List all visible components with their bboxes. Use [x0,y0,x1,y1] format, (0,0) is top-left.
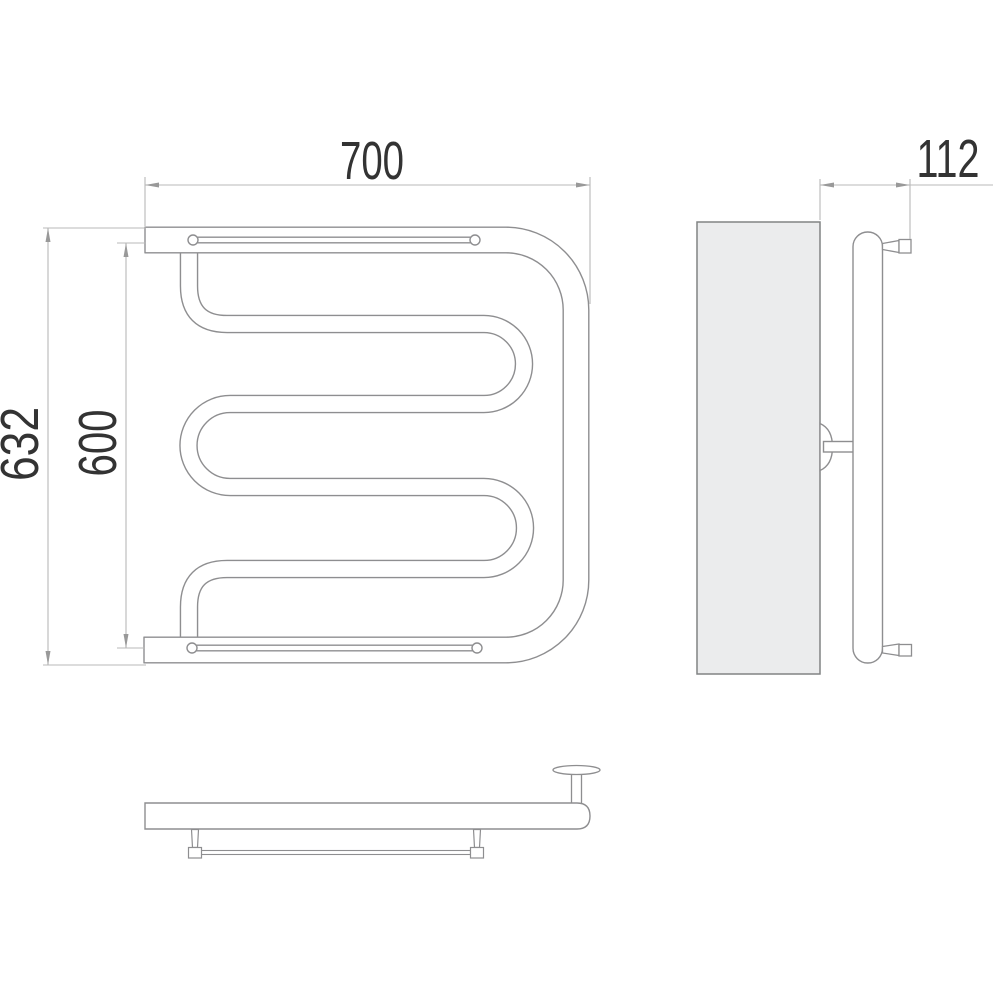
bottom-bar-right-pin [472,643,482,653]
bottom-connection-fitting [883,644,912,656]
arrowhead-top [124,243,129,257]
dimension-label-axis-height: 600 [68,410,128,477]
shelf-tube-plan [145,803,590,829]
top-view [145,766,600,859]
arrowhead-left [145,183,159,188]
arrowhead-bottom [124,634,129,648]
wall-panel [697,222,820,674]
dimension-label-depth: 112 [917,129,980,189]
arrowhead-right [576,183,590,188]
top-bar-right-pin [470,235,480,245]
towel-bar-plan [201,851,471,855]
shelf-rails-and-right-bend [144,227,576,664]
towel-bar-right-support [471,830,484,859]
top-bar-left-pin [188,235,198,245]
top-connection-fitting [883,240,912,254]
arrowhead-left [820,183,834,188]
towel-bar-left-support [189,830,202,859]
bottom-bar-left-pin [187,643,197,653]
dimension-depth-112: 112 [820,129,993,239]
arrowhead-top [46,228,51,242]
front-view [144,227,576,664]
bracket-wall-plate [553,766,600,775]
side-pipe [853,232,883,663]
arrowhead-right [896,183,910,188]
bracket-stem [572,772,582,804]
dimension-axis-height-600: 600 [68,243,146,648]
bottom-towel-bar [187,643,482,653]
technical-drawing-page: 700 112 632 600 [0,0,1000,1000]
top-towel-bar [188,235,480,245]
dimension-label-overall-height: 632 [0,407,50,481]
towel-warmer-drawing: 700 112 632 600 [0,0,1000,1000]
serpentine-coil [189,247,526,645]
side-view [697,222,912,674]
dimension-width-700: 700 [145,131,590,304]
wall-bracket-arm [824,442,855,453]
dimension-label-width: 700 [340,131,404,191]
arrowhead-bottom [46,651,51,665]
